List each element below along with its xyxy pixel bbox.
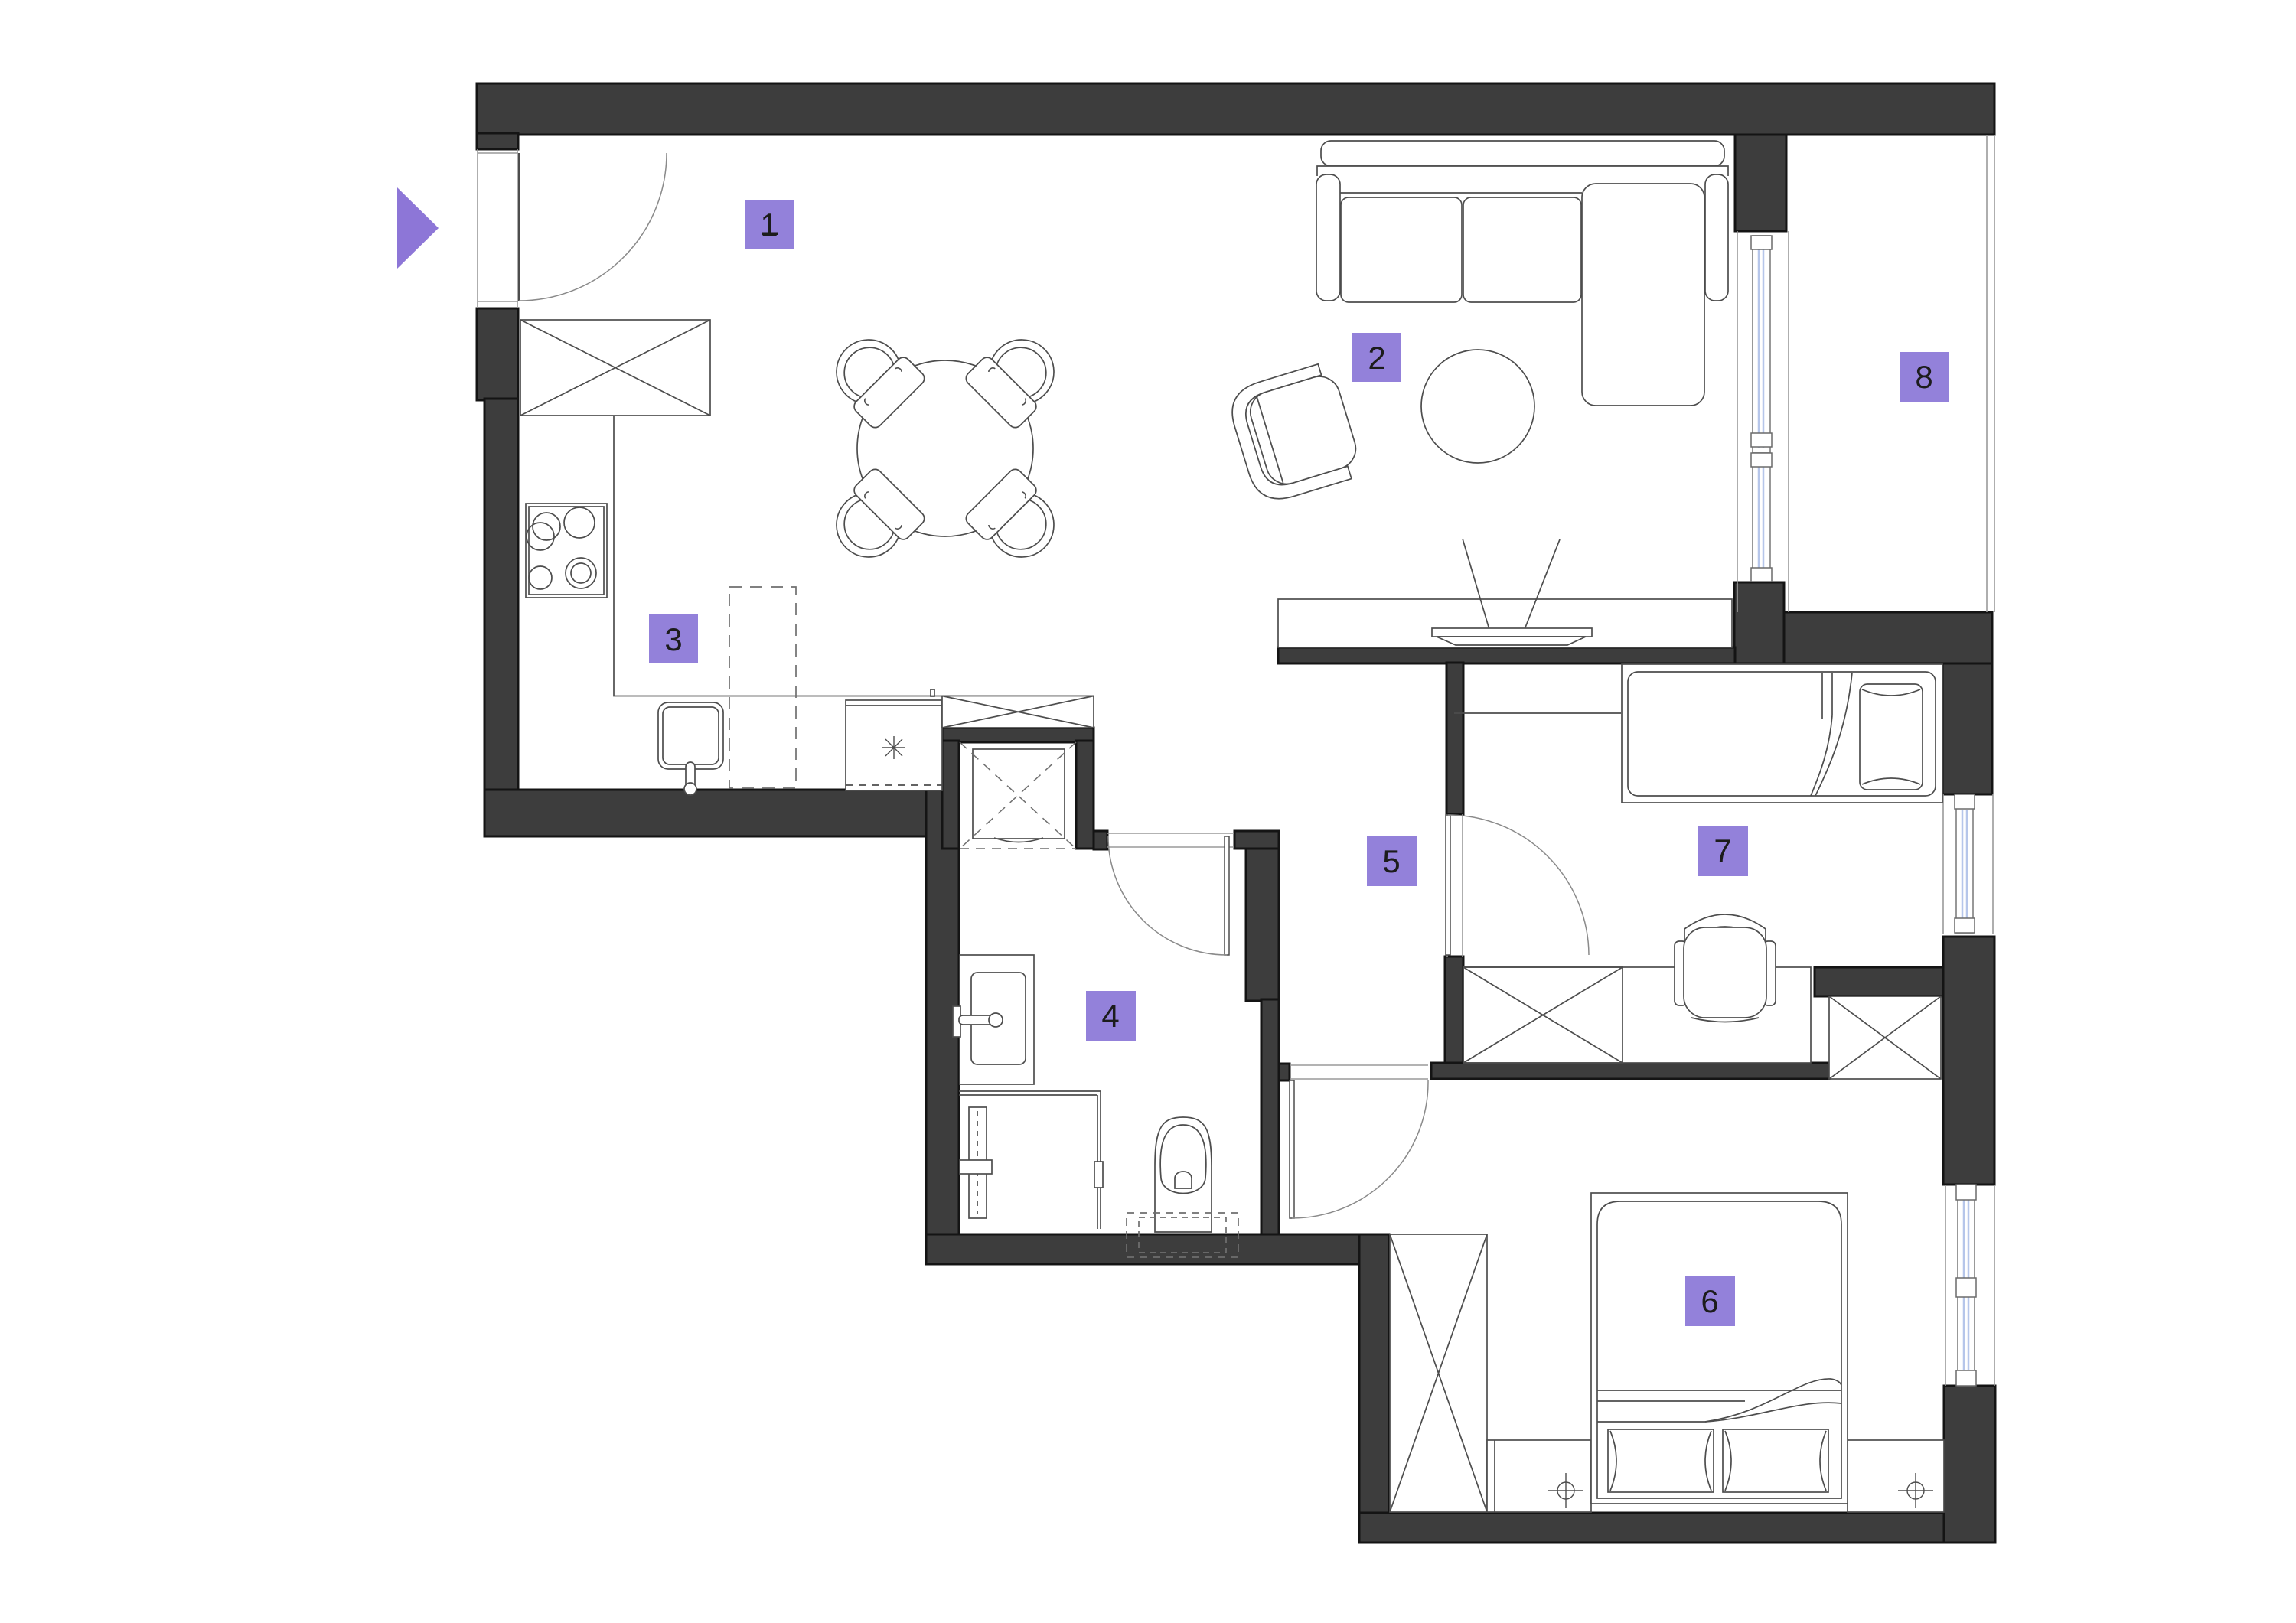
svg-text:2: 2 [1368,340,1385,376]
svg-text:8: 8 [1915,359,1932,395]
svg-text:4: 4 [1101,998,1119,1034]
svg-text:6: 6 [1701,1283,1718,1319]
svg-text:7: 7 [1714,833,1731,869]
svg-text:1: 1 [760,207,778,243]
svg-text:5: 5 [1382,843,1400,879]
svg-text:3: 3 [664,621,682,657]
